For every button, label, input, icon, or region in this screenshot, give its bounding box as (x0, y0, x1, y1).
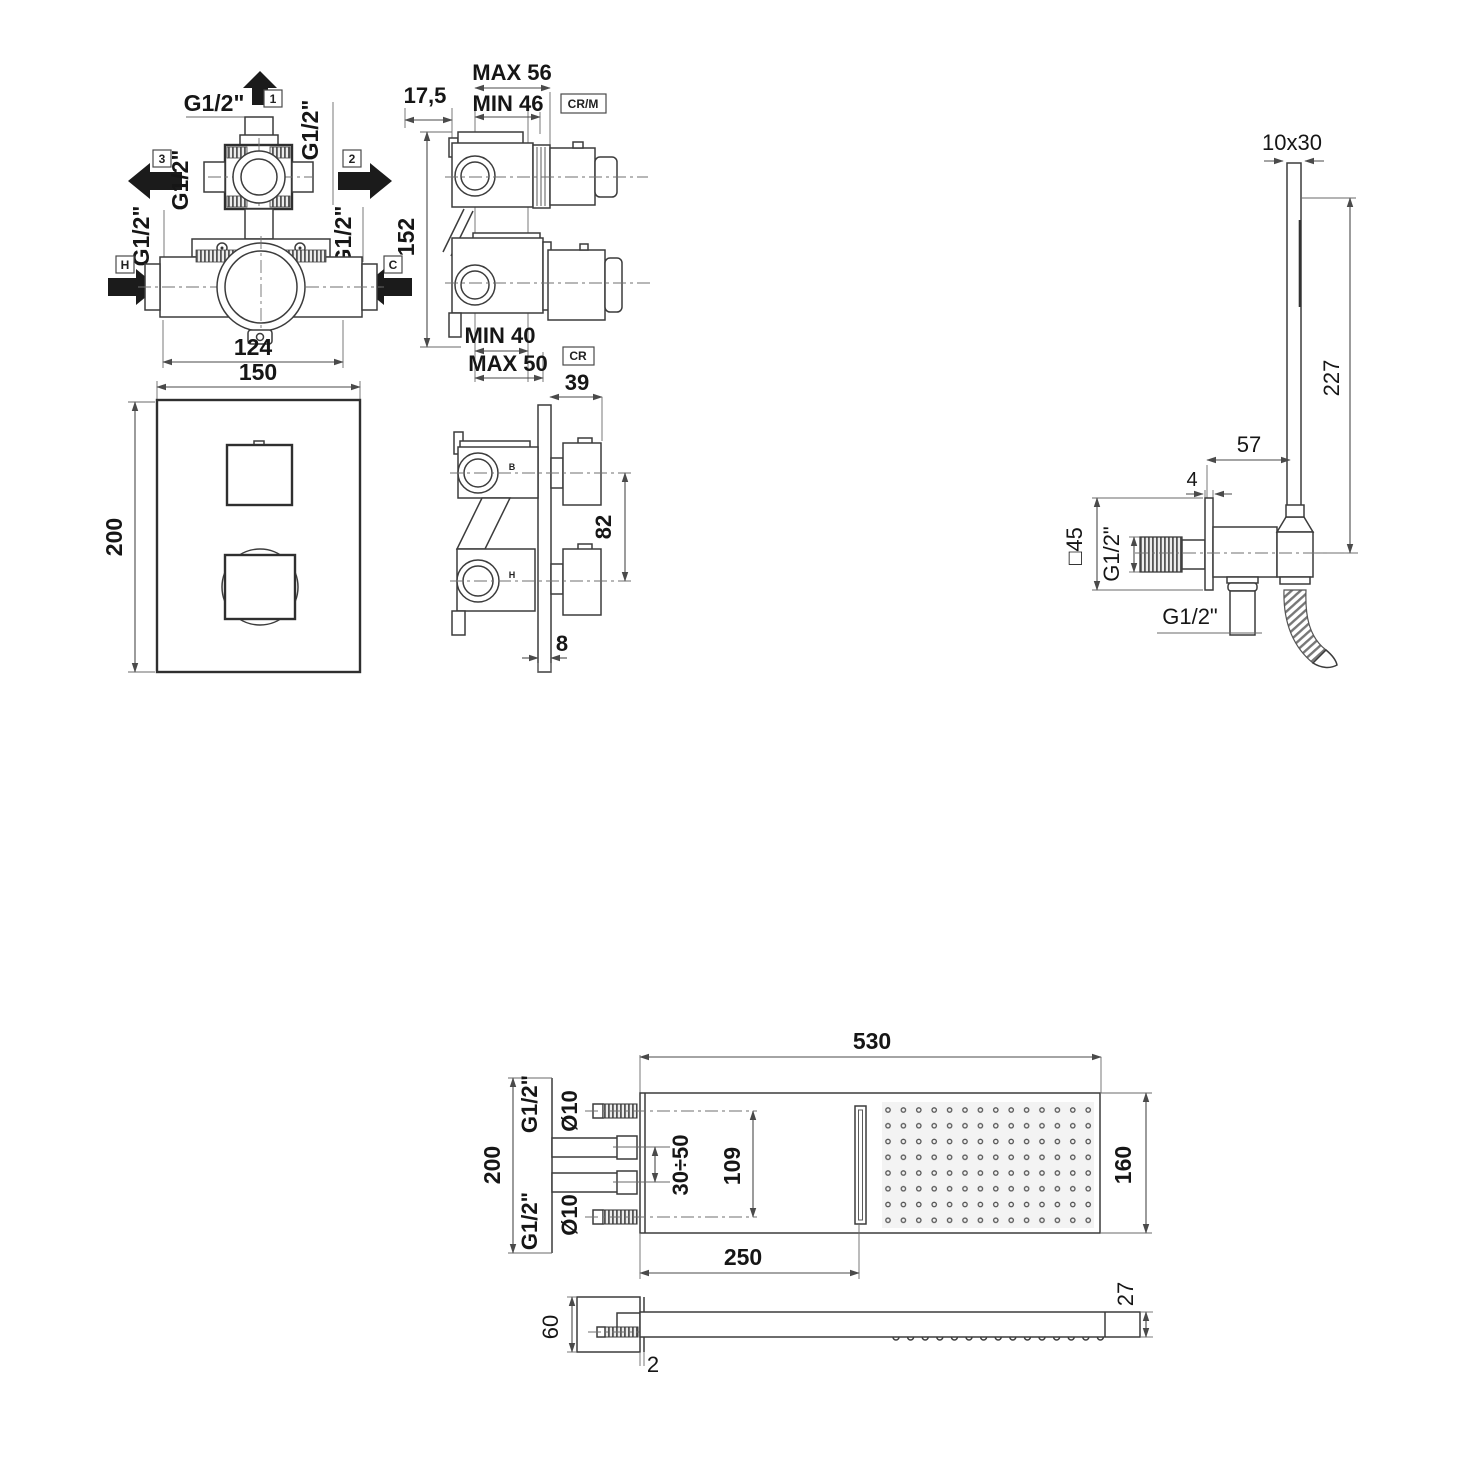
diverter-knob-side (563, 443, 601, 505)
adjustable-pipe-top (617, 1136, 637, 1159)
thread-bottom-label: G1/2" (517, 1192, 542, 1250)
wall-thread-stub (1140, 537, 1182, 572)
port-top-letter: B (509, 462, 516, 472)
flow-arrow-right-icon (338, 163, 392, 199)
dim-min-bottom: MIN 40 (465, 323, 536, 348)
hose-outlet-port (1230, 591, 1255, 635)
dim-plate-thickness: 8 (556, 631, 568, 656)
thread-outlet-label: G1/2" (1162, 604, 1218, 629)
technical-drawing-sheet: 1 G1/2" G1/2" 3 G1/2" 2 G1/2" H G1/2" (0, 0, 1472, 1472)
thread-top-label: G1/2" (517, 1075, 542, 1133)
flexible-hose (1284, 590, 1326, 663)
dim-wand-length: 227 (1319, 360, 1344, 397)
dim-flange-size: □45 (1062, 527, 1087, 565)
handshower-outlet-view: 10x30 227 57 4 □45 G1/2" (1062, 130, 1358, 667)
temperature-knob (225, 555, 295, 619)
wall-plate-section (538, 405, 551, 672)
dim-face-thickness: 2 (647, 1352, 659, 1377)
pipe-bottom-label: Ø10 (557, 1194, 582, 1236)
mixer-finished-side-view: 39 B H 82 8 (450, 370, 632, 672)
dim-head-thickness: 27 (1113, 1282, 1138, 1306)
head-profile (640, 1312, 1140, 1337)
dim-min-top: MIN 46 (473, 91, 544, 116)
dim-handle-centers: 82 (591, 515, 616, 539)
dim-offset: 17,5 (404, 83, 447, 108)
waterfall-slot (855, 1106, 866, 1224)
shower-system-drawing: 1 G1/2" G1/2" 3 G1/2" 2 G1/2" H G1/2" (0, 0, 1472, 1472)
port-hot-label: H (121, 258, 130, 272)
showerhead-side-view: 60 2 27 (538, 1282, 1153, 1377)
diverter-knob (227, 445, 292, 505)
dim-head-depth: 160 (1110, 1146, 1136, 1184)
outlet-flange (1205, 498, 1213, 590)
port-2-label: 2 (349, 152, 356, 166)
spray-nozzle-field (882, 1102, 1094, 1228)
dim-block-height: 60 (538, 1315, 563, 1339)
mixer-rough-side-view: 17,5 MAX 56 MIN 46 CR/M (393, 60, 652, 382)
temperature-knob-side (563, 549, 601, 615)
handshower-wand (1287, 163, 1301, 507)
thread-label-right: G1/2" (297, 100, 323, 161)
handshower-holder (1277, 532, 1313, 577)
mixer-front-view: 1 G1/2" G1/2" 3 G1/2" 2 G1/2" H G1/2" (108, 71, 412, 368)
adjustable-pipe-bottom (617, 1171, 637, 1194)
dim-plate-width: 150 (239, 359, 277, 385)
dim-max-top: MAX 56 (472, 60, 551, 85)
dim-knob-depth: 39 (565, 370, 589, 395)
dim-plate-height: 200 (101, 518, 127, 556)
finish-code-bottom: CR (569, 349, 587, 363)
dim-body-width: 124 (234, 334, 273, 360)
dim-inlet-centers: 109 (719, 1147, 745, 1185)
port-cold-label: C (389, 258, 398, 272)
thread-label-left: G1/2" (167, 150, 193, 211)
port-1-label: 1 (270, 92, 277, 106)
dim-outlet-offset: 57 (1237, 432, 1261, 457)
outlet-body (1213, 527, 1277, 577)
dim-max-bottom: MAX 50 (468, 351, 547, 376)
thread-label-top: G1/2" (184, 90, 245, 116)
dim-adjust-range: 30÷50 (668, 1134, 693, 1195)
thread-wall-label: G1/2" (1099, 526, 1124, 582)
finish-code-top: CR/M (568, 97, 599, 111)
wall-block (577, 1297, 640, 1352)
dim-flange-thickness: 4 (1186, 469, 1197, 491)
mixer-plate-view: 150 200 (101, 359, 360, 672)
dim-head-width: 530 (853, 1028, 891, 1054)
port-3-label: 3 (159, 152, 166, 166)
showerhead-plan-view: 530 200 G1/2" G1/2" Ø10 Ø10 30÷50 (479, 1028, 1152, 1279)
pipe-top-label: Ø10 (557, 1090, 582, 1132)
dim-height: 152 (393, 218, 419, 256)
dim-wand-section: 10x30 (1262, 130, 1322, 155)
dim-bracket-height: 200 (479, 1146, 505, 1184)
port-bottom-letter: H (509, 570, 516, 580)
dim-slot-offset: 250 (724, 1244, 762, 1270)
